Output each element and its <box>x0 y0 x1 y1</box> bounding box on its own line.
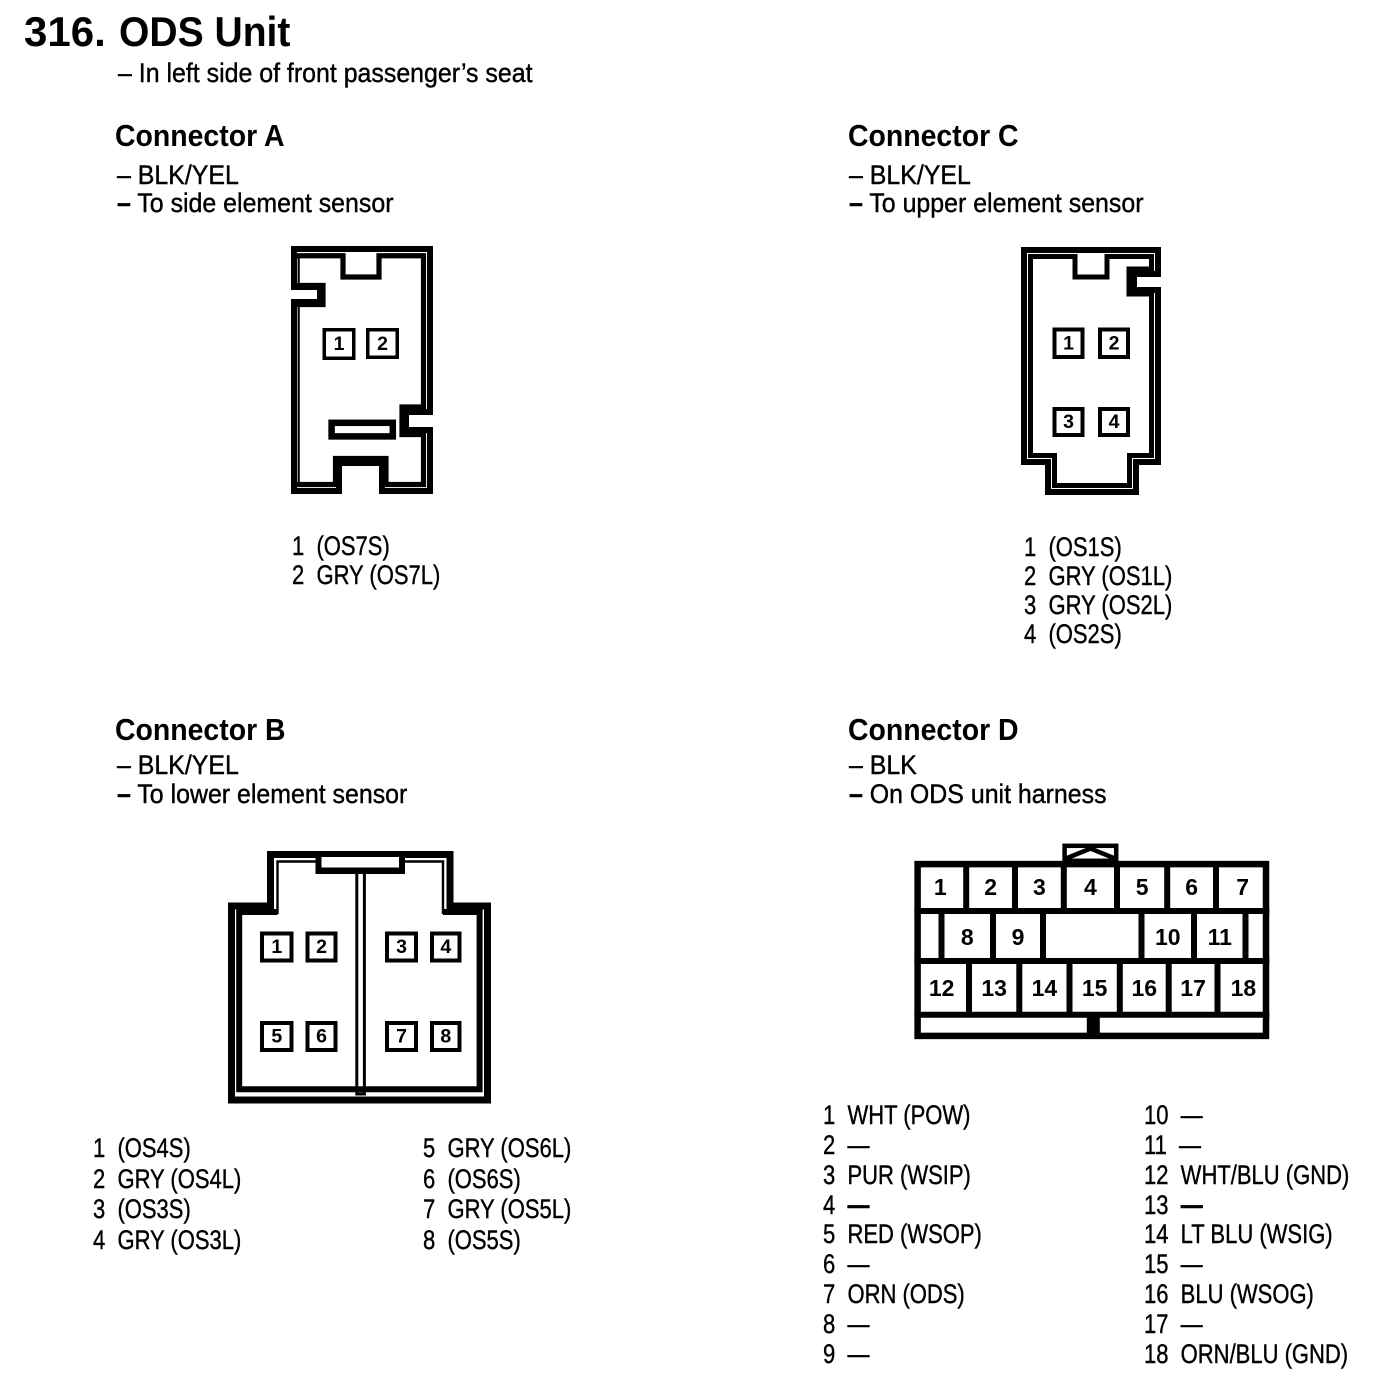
svg-text:14: 14 <box>1032 975 1058 1001</box>
svg-text:17: 17 <box>1180 975 1206 1001</box>
svg-text:4: 4 <box>1109 411 1120 433</box>
svg-text:7: 7 <box>1236 874 1249 900</box>
svg-text:4: 4 <box>440 936 451 958</box>
svg-text:10: 10 <box>1155 924 1181 950</box>
svg-text:3: 3 <box>1033 874 1046 900</box>
svg-text:7: 7 <box>396 1026 407 1048</box>
svg-text:5: 5 <box>271 1026 282 1048</box>
svg-text:6: 6 <box>316 1026 327 1048</box>
svg-text:2: 2 <box>377 333 388 355</box>
svg-text:16: 16 <box>1132 975 1158 1001</box>
svg-text:15: 15 <box>1082 975 1108 1001</box>
svg-text:1: 1 <box>934 874 947 900</box>
svg-text:2: 2 <box>316 936 327 958</box>
svg-text:1: 1 <box>271 936 282 958</box>
svg-text:2: 2 <box>984 874 997 900</box>
svg-text:1: 1 <box>1063 333 1074 355</box>
svg-text:8: 8 <box>440 1026 451 1048</box>
svg-text:2: 2 <box>1109 333 1120 355</box>
svg-text:3: 3 <box>396 936 407 958</box>
svg-text:4: 4 <box>1084 874 1097 900</box>
svg-text:5: 5 <box>1136 874 1149 900</box>
svg-text:8: 8 <box>961 924 974 950</box>
svg-text:9: 9 <box>1012 924 1025 950</box>
svg-text:3: 3 <box>1063 411 1074 433</box>
svg-text:1: 1 <box>334 333 345 355</box>
svg-text:6: 6 <box>1185 874 1198 900</box>
svg-text:11: 11 <box>1208 924 1233 950</box>
svg-text:12: 12 <box>929 975 955 1001</box>
svg-text:13: 13 <box>981 975 1007 1001</box>
svg-text:18: 18 <box>1231 975 1257 1001</box>
